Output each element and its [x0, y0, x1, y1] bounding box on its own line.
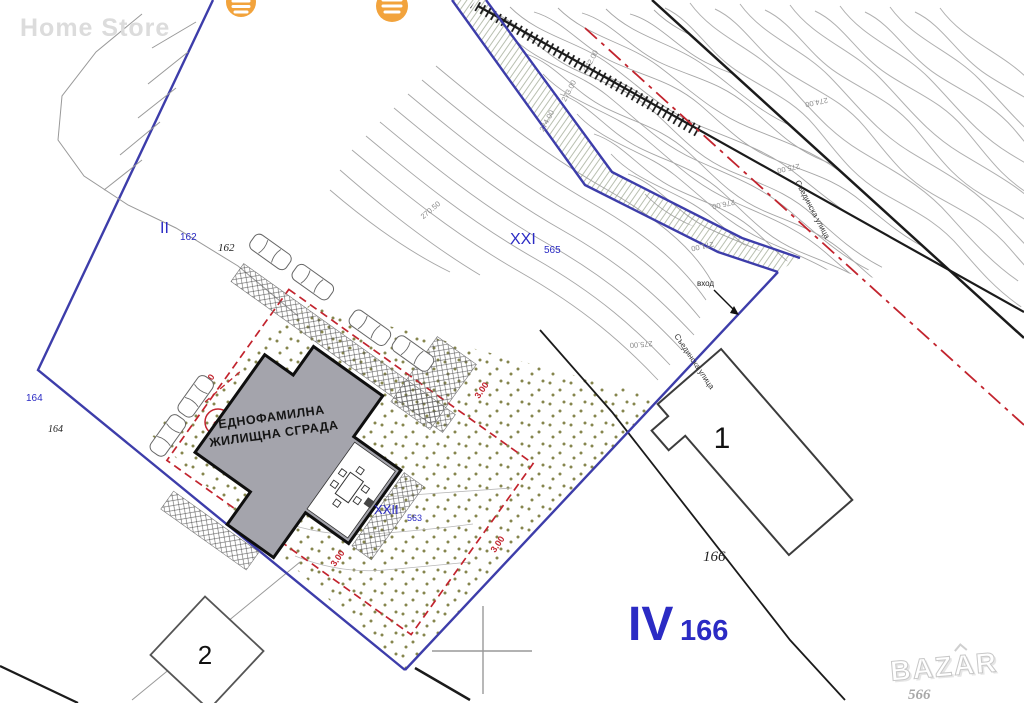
boundary-corner-segment [415, 668, 470, 700]
parcel-ii-roman: II [160, 220, 169, 237]
entrance-label: вход [697, 279, 714, 288]
parcel-xxii-number: 563 [407, 513, 422, 523]
neighbor-building-2-number: 2 [198, 640, 212, 670]
bazar-number: 566 [908, 687, 931, 703]
parcel-164-blue: 164 [26, 393, 43, 404]
elevation-label: 276.00 [711, 198, 735, 212]
road-edge-north [478, 6, 1024, 312]
parcel-164-black: 164 [48, 424, 63, 435]
elevation-label: 275.00 [776, 162, 800, 176]
fence-ticks [104, 22, 196, 190]
parcel-ii-boundary [58, 14, 298, 316]
parcel-iv-cadastre: 166 [703, 549, 726, 565]
home-store-watermark: Home Store [20, 14, 170, 42]
site-plan-page: 38 3.00 3.00 3.00 3.00 ЕДНОФАМИЛНА ЖИЛИЩ… [0, 0, 1024, 703]
parcel-xxii-roman: XXII [374, 502, 399, 517]
bazar-logo: BAZAR BAZAR [889, 641, 1002, 688]
parcel-xxi-number: 565 [544, 245, 561, 256]
boundary-bottom-left [0, 666, 78, 703]
parcel-ii-number: 162 [180, 232, 197, 243]
sticker-icon [376, 0, 408, 22]
contours-northeast [662, 0, 1024, 314]
neighbor-building-1 [641, 349, 852, 569]
car-icon [290, 262, 336, 302]
elevation-label: 275.00 [629, 339, 653, 350]
sticker-icon [226, 0, 256, 17]
parcel-iv-roman: IV [628, 598, 673, 651]
parcel-xxi-roman: XXI [510, 231, 536, 248]
site-plan-drawing: 38 3.00 3.00 3.00 3.00 ЕДНОФАМИЛНА ЖИЛИЩ… [0, 0, 1024, 703]
neighbor-building-1-number: 1 [714, 422, 731, 455]
parcel-ii-cadastre: 162 [218, 242, 235, 254]
street-stairs-hatch [452, 0, 800, 272]
car-icon [247, 232, 293, 272]
contours-parcel-xxi [490, 7, 1023, 433]
elevation-label: 274.00 [804, 96, 828, 110]
elevation-label: 270.50 [419, 199, 442, 221]
parcel-iv-number: 166 [680, 615, 728, 647]
